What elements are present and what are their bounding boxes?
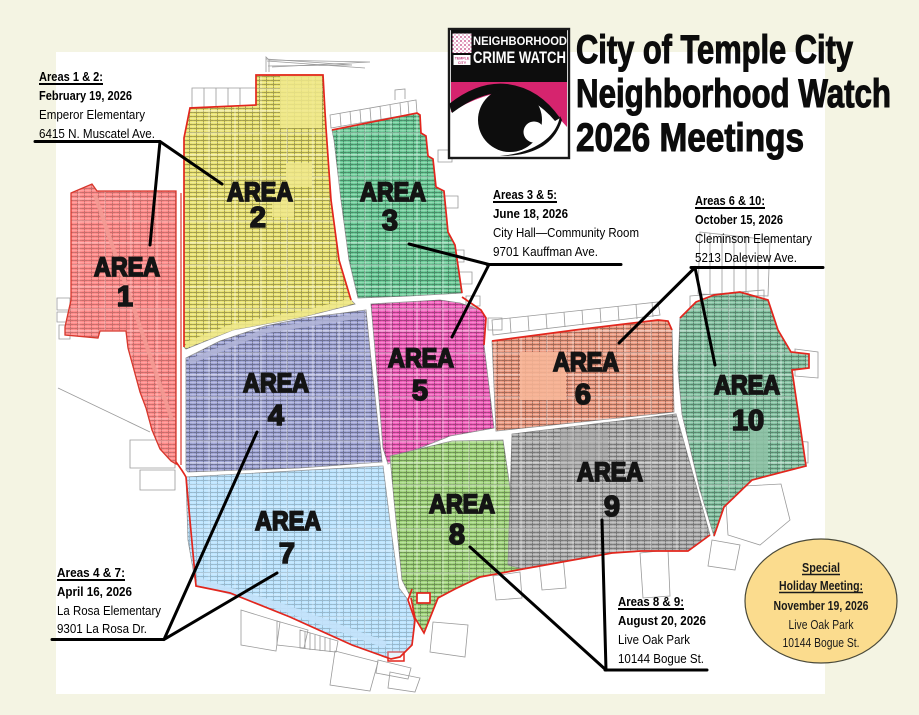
svg-text:Cleminson Elementary: Cleminson Elementary	[695, 231, 812, 246]
svg-text:3: 3	[382, 205, 398, 237]
svg-text:October 15, 2026: October 15, 2026	[695, 212, 783, 227]
svg-text:4: 4	[268, 400, 284, 432]
svg-text:10144 Bogue St.: 10144 Bogue St.	[783, 636, 860, 650]
svg-text:6: 6	[575, 379, 591, 411]
svg-text:10: 10	[732, 405, 764, 437]
svg-text:City of Temple City: City of Temple City	[576, 28, 854, 72]
svg-text:Areas 8 & 9:: Areas 8 & 9:	[618, 594, 684, 609]
svg-text:7: 7	[279, 538, 295, 570]
svg-text:AREA: AREA	[388, 343, 454, 373]
svg-text:April 16, 2026: April 16, 2026	[57, 584, 132, 599]
svg-text:June 18, 2026: June 18, 2026	[493, 206, 568, 221]
svg-text:Holiday Meeting:: Holiday Meeting:	[779, 579, 863, 593]
svg-text:Neighborhood Watch: Neighborhood Watch	[576, 72, 891, 116]
svg-text:AREA: AREA	[243, 368, 309, 398]
svg-text:Live Oak Park: Live Oak Park	[789, 618, 855, 632]
svg-text:AREA: AREA	[553, 347, 619, 377]
svg-text:AREA: AREA	[577, 457, 643, 487]
svg-text:February 19, 2026: February 19, 2026	[39, 88, 132, 103]
svg-text:10144 Bogue St.: 10144 Bogue St.	[618, 651, 704, 666]
svg-text:TEMPLE: TEMPLE	[455, 57, 470, 61]
svg-text:9301 La Rosa Dr.: 9301 La Rosa Dr.	[57, 621, 147, 636]
svg-text:AREA: AREA	[360, 177, 426, 207]
svg-text:Live Oak Park: Live Oak Park	[618, 632, 690, 647]
svg-text:NEIGHBORHOOD: NEIGHBORHOOD	[473, 34, 567, 48]
svg-text:Emperor Elementary: Emperor Elementary	[39, 107, 145, 122]
svg-text:2: 2	[250, 202, 266, 234]
svg-text:City Hall—Community Room: City Hall—Community Room	[493, 225, 639, 240]
svg-text:August 20, 2026: August 20, 2026	[618, 613, 706, 628]
svg-text:Areas 6 & 10:: Areas 6 & 10:	[695, 193, 765, 208]
svg-text:8: 8	[449, 519, 465, 551]
svg-text:AREA: AREA	[429, 489, 495, 519]
svg-text:CITY: CITY	[458, 61, 467, 65]
svg-text:9701 Kauffman Ave.: 9701 Kauffman Ave.	[493, 244, 598, 259]
svg-text:AREA: AREA	[255, 506, 321, 536]
svg-text:Areas 1 & 2:: Areas 1 & 2:	[39, 69, 103, 84]
svg-text:Special: Special	[802, 561, 840, 575]
svg-text:1: 1	[117, 281, 133, 313]
svg-text:AREA: AREA	[94, 252, 160, 282]
svg-text:5213 Daleview Ave.: 5213 Daleview Ave.	[695, 250, 797, 265]
svg-text:Areas 3 & 5:: Areas 3 & 5:	[493, 187, 557, 202]
svg-text:Areas 4 & 7:: Areas 4 & 7:	[57, 565, 125, 580]
svg-text:AREA: AREA	[714, 370, 780, 400]
svg-text:La Rosa Elementary: La Rosa Elementary	[57, 603, 161, 618]
svg-text:November 19, 2026: November 19, 2026	[774, 599, 869, 613]
svg-text:9: 9	[604, 491, 620, 523]
svg-text:6415 N. Muscatel Ave.: 6415 N. Muscatel Ave.	[39, 126, 155, 141]
svg-text:2026 Meetings: 2026 Meetings	[576, 116, 804, 160]
svg-text:CRIME WATCH: CRIME WATCH	[473, 48, 566, 67]
svg-text:5: 5	[412, 375, 428, 407]
